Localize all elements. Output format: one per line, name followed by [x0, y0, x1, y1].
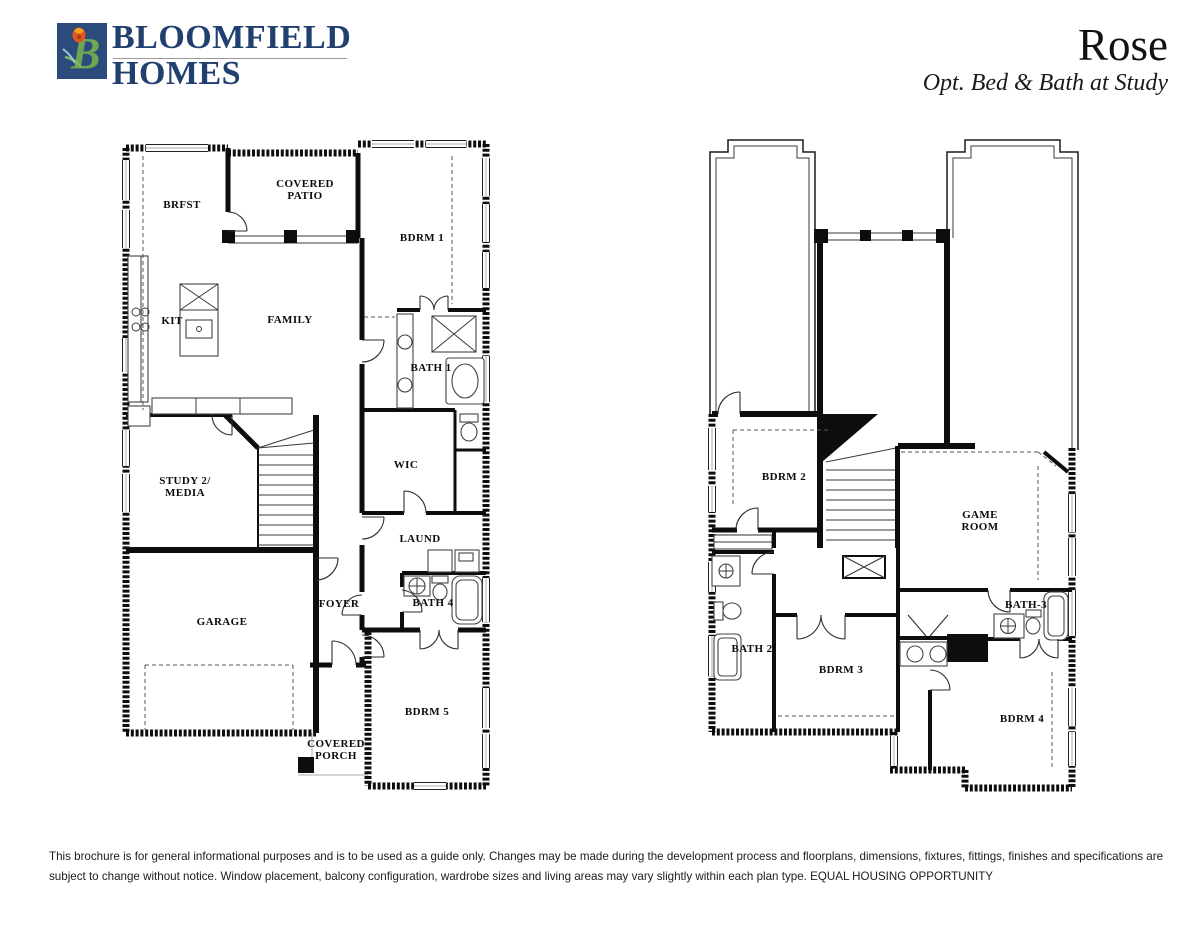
- room-label-bdrm3: BDRM 3: [819, 664, 863, 676]
- room-label-bdrm4: BDRM 4: [1000, 713, 1044, 725]
- staircase-second-floor: [822, 414, 896, 548]
- room-label-covered-porch: COVERED PORCH: [307, 738, 365, 762]
- room-label-bdrm2: BDRM 2: [762, 471, 806, 483]
- laundry-fixtures: [428, 550, 479, 572]
- room-label-bath1: BATH 1: [410, 362, 451, 374]
- second-floor-plan: [708, 140, 1079, 788]
- room-label-wic: WIC: [394, 459, 418, 471]
- room-label-bath4: BATH 4: [412, 597, 453, 609]
- disclaimer-line2: subject to change without notice. Window…: [49, 867, 1169, 887]
- room-label-family: FAMILY: [267, 314, 312, 326]
- room-label-bdrm1: BDRM 1: [400, 232, 444, 244]
- floor-plan-canvas: [0, 0, 1200, 927]
- room-label-laund: LAUND: [399, 533, 440, 545]
- brochure-page: B BLOOMFIELD HOMES Rose Opt. Bed & Bath …: [0, 0, 1200, 927]
- disclaimer-line1: This brochure is for general information…: [49, 847, 1169, 867]
- disclaimer: This brochure is for general information…: [49, 847, 1169, 887]
- room-label-kit: KIT: [161, 315, 182, 327]
- room-label-brfst: BRFST: [163, 199, 200, 211]
- staircase-first-floor: [258, 430, 314, 545]
- kitchen-fixtures: [128, 256, 292, 426]
- room-label-study: STUDY 2/ MEDIA: [152, 475, 218, 499]
- room-label-bdrm5: BDRM 5: [405, 706, 449, 718]
- room-label-bath3: BATH-3: [1005, 599, 1047, 611]
- room-label-garage: GARAGE: [197, 616, 248, 628]
- room-label-game-room: GAME ROOM: [956, 509, 1004, 533]
- room-label-covered-patio: COVERED PATIO: [271, 178, 339, 202]
- bath1-fixtures: [397, 314, 484, 441]
- room-label-foyer: FOYER: [319, 598, 360, 610]
- bath2-fixtures: [712, 556, 741, 680]
- room-label-bath2: BATH 2: [731, 643, 772, 655]
